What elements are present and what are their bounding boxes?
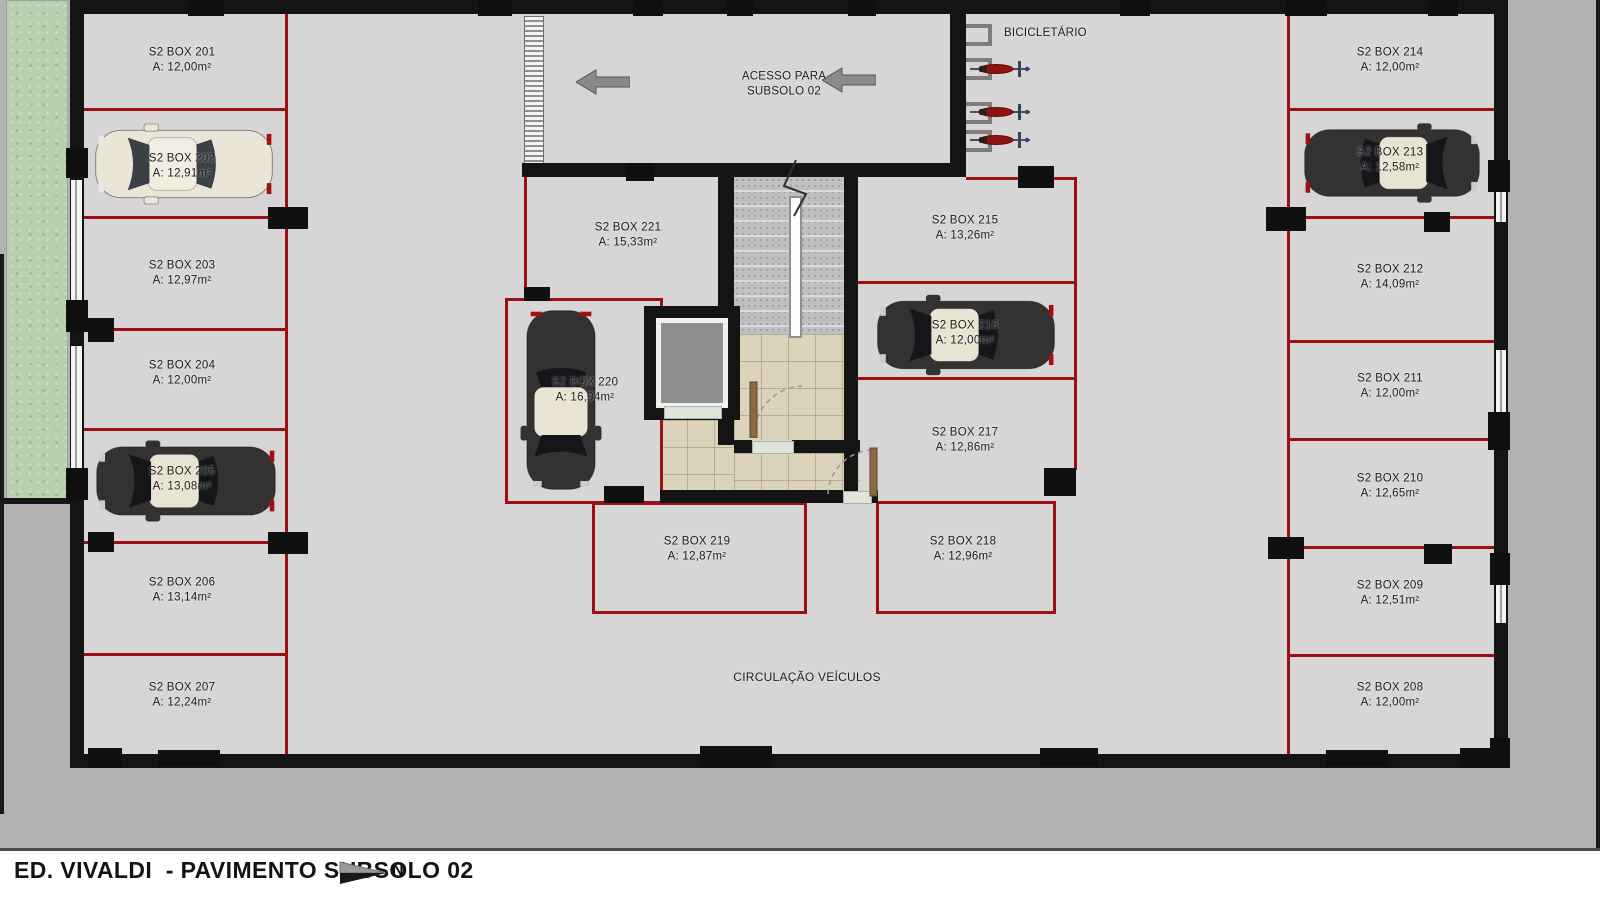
pillar xyxy=(1488,160,1510,192)
window xyxy=(1496,585,1506,623)
parking-box-label-203: S2 BOX 203A: 12,97m² xyxy=(149,259,215,288)
pillar xyxy=(1266,207,1306,231)
window xyxy=(1496,192,1506,222)
parking-box-label-216: S2 BOX 216A: 12,00m² xyxy=(932,319,998,348)
pillar xyxy=(1268,537,1304,559)
parking-box-label-211: S2 BOX 211A: 12,00m² xyxy=(1357,372,1423,401)
north-label: N xyxy=(392,862,404,880)
pillar xyxy=(727,0,753,16)
ramp-arrow-icon xyxy=(822,66,876,94)
parking-box-label-204: S2 BOX 204A: 12,00m² xyxy=(149,359,215,388)
divider-line xyxy=(84,428,285,431)
pillar xyxy=(66,300,88,332)
pillar xyxy=(524,287,550,301)
divider-line xyxy=(1074,177,1077,470)
pillar xyxy=(188,0,224,16)
divider-line xyxy=(84,541,285,544)
pillar xyxy=(1488,412,1510,450)
pillar xyxy=(1044,468,1076,496)
bike-area-label-text: BICICLETÁRIO xyxy=(1004,27,1087,39)
divider-line xyxy=(84,216,285,219)
parking-box-label-207: S2 BOX 207A: 12,24m² xyxy=(149,681,215,710)
elevator xyxy=(656,318,728,408)
pillar xyxy=(626,163,654,181)
pillar xyxy=(478,0,512,16)
door-swing-icon xyxy=(746,374,804,438)
ramp-hatch xyxy=(524,16,544,165)
page-title: ED. VIVALDI - PAVIMENTO SUBSOLO 02 xyxy=(14,857,474,884)
wall-bottom xyxy=(70,754,1508,768)
pillar xyxy=(1490,553,1510,585)
parking-box-label-220: S2 BOX 220A: 16,94m² xyxy=(552,376,618,405)
bike-area-label: BICICLETÁRIO xyxy=(1004,26,1087,41)
divider-line xyxy=(84,653,285,656)
circulation-label-text: CIRCULAÇÃO VEÍCULOS xyxy=(733,670,880,684)
ramp-label-line1: ACESSO PARA xyxy=(742,71,826,83)
pillar xyxy=(1326,750,1388,766)
wall-ramp-bottom xyxy=(522,163,966,177)
pillar xyxy=(66,468,88,500)
window xyxy=(71,180,82,304)
pillar xyxy=(1424,544,1452,564)
ramp-label-line2: SUBSOLO 02 xyxy=(747,85,821,97)
boundary-line-left xyxy=(0,254,4,814)
window xyxy=(71,346,82,468)
pillar xyxy=(604,486,644,503)
pillar xyxy=(158,750,220,766)
pillar xyxy=(700,746,772,768)
divider-line xyxy=(858,281,1077,284)
north-arrow-icon xyxy=(338,860,388,886)
divider-line xyxy=(1287,12,1290,754)
divider-line xyxy=(1290,108,1494,111)
parking-box-label-209: S2 BOX 209A: 12,51m² xyxy=(1357,579,1423,608)
pillar xyxy=(1040,748,1098,766)
parking-box-label-215: S2 BOX 215A: 13,26m² xyxy=(932,214,998,243)
pillar xyxy=(1285,0,1327,16)
parking-box-label-201: S2 BOX 201A: 12,00m² xyxy=(149,46,215,75)
ramp-arrow-icon xyxy=(576,68,630,96)
parking-box-label-208: S2 BOX 208A: 12,00m² xyxy=(1357,681,1423,710)
parking-box-label-219: S2 BOX 219A: 12,87m² xyxy=(664,535,730,564)
divider-line xyxy=(84,328,285,331)
parking-box-label-218: S2 BOX 218A: 12,96m² xyxy=(930,535,996,564)
pillar xyxy=(848,0,876,16)
parking-box-label-210: S2 BOX 210A: 12,65m² xyxy=(1357,472,1423,501)
parking-box-label-221: S2 BOX 221A: 15,33m² xyxy=(595,221,661,250)
parking-box-label-212: S2 BOX 212A: 14,09m² xyxy=(1357,263,1423,292)
divider-line xyxy=(84,108,285,111)
boundary-line-under-garden xyxy=(2,498,70,504)
divider-line xyxy=(1290,438,1494,441)
pillar xyxy=(1460,748,1492,768)
divider-line xyxy=(1290,546,1494,549)
pillar xyxy=(1120,0,1150,16)
ramp-label: ACESSO PARA SUBSOLO 02 xyxy=(742,70,826,99)
pillar xyxy=(88,532,114,552)
pillar xyxy=(268,207,308,229)
parking-box-label-206: S2 BOX 206A: 13,14m² xyxy=(149,576,215,605)
pillar xyxy=(88,318,114,342)
pillar xyxy=(1428,0,1458,16)
divider-line xyxy=(524,172,527,298)
divider-line xyxy=(285,12,288,754)
pillar xyxy=(66,148,88,178)
divider-line xyxy=(1290,340,1494,343)
pillar xyxy=(633,0,663,16)
parking-box-label-217: S2 BOX 217A: 12,86m² xyxy=(932,426,998,455)
pillar xyxy=(1490,738,1510,768)
parking-box-label-214: S2 BOX 214A: 12,00m² xyxy=(1357,46,1423,75)
door-swing-icon xyxy=(826,442,880,498)
stair-break-line-icon xyxy=(776,158,820,220)
parking-box-label-205: S2 BOX 205A: 13,08m² xyxy=(149,465,215,494)
window xyxy=(1496,350,1506,412)
wall-landing-divider-a xyxy=(734,440,752,453)
wall-ramp-right xyxy=(950,0,966,170)
divider-line xyxy=(858,377,1077,380)
garden-strip xyxy=(6,0,68,503)
pillar xyxy=(1424,212,1450,232)
floor-plan-canvas: ACESSO PARA SUBSOLO 02 BICICLETÁRIO CIRC… xyxy=(0,0,1600,899)
elevator-door-sill xyxy=(664,406,722,419)
circulation-label: CIRCULAÇÃO VEÍCULOS xyxy=(733,670,880,685)
pillar xyxy=(268,532,308,554)
boundary-line-right xyxy=(1596,0,1600,851)
pillar xyxy=(88,748,122,768)
parking-box-label-213: S2 BOX 213A: 12,58m² xyxy=(1357,146,1423,175)
parking-box-label-202: S2 BOX 202A: 12,91m² xyxy=(149,152,215,181)
divider-line xyxy=(1290,216,1494,219)
door-sill xyxy=(752,441,794,454)
divider-line xyxy=(1290,654,1494,657)
bicycle-rack-icon xyxy=(966,18,1038,170)
wall-hall-bottom-a xyxy=(660,490,843,503)
